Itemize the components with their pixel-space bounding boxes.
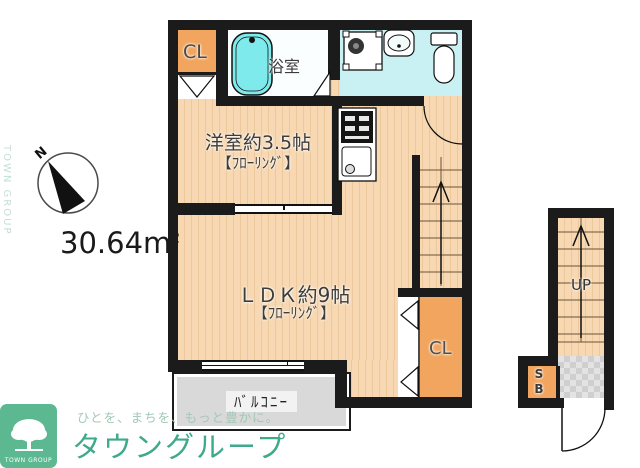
- closet-bottom-label: CL: [429, 338, 452, 359]
- wall-main-top: [168, 20, 472, 30]
- wall-main-left: [168, 20, 178, 372]
- town-group-logo: TOWN GROUP: [0, 404, 57, 468]
- area-value: 30.64m: [60, 226, 171, 260]
- sliding-door-tick: [283, 204, 285, 210]
- closet-top-door-area: [178, 75, 216, 99]
- wall-entry-bottom: [518, 398, 564, 408]
- shoe-box-label: SB: [533, 367, 545, 397]
- compass-icon: [38, 153, 98, 214]
- left-edge-watermark: TOWN GROUP: [1, 145, 12, 235]
- ldk-flooring-label: 【ﾌﾛｰﾘﾝｸﾞ】: [224, 302, 364, 323]
- logo-box-text: TOWN GROUP: [5, 457, 52, 464]
- tree-logo-icon: [7, 417, 51, 457]
- area-text: 30.64m2: [60, 226, 180, 260]
- closet-bottom-door-area: [398, 297, 420, 397]
- wall-shoebox-divider: [556, 366, 560, 398]
- bathroom-label: 浴室: [268, 53, 300, 77]
- wall-bath-wash-divider: [328, 20, 340, 80]
- wall-main-right: [462, 20, 472, 408]
- floorplan-image: TOWN GROUP ﾊﾞﾙｺﾆｰ: [0, 0, 640, 468]
- wall-main-bottom-right: [335, 397, 472, 408]
- wall-entry-right: [604, 208, 614, 410]
- closet-top-label: CL: [183, 41, 207, 63]
- brand-name: タウングループ: [72, 424, 287, 466]
- window-sash-line: [202, 365, 304, 366]
- compass-north-label: N: [32, 144, 50, 162]
- window-tick: [287, 361, 288, 366]
- wall-closet-top-line: [178, 72, 216, 75]
- wall-room-partition: [178, 203, 235, 215]
- wall-entry-left: [548, 208, 558, 358]
- washroom-floor: [340, 30, 462, 96]
- entrance-tile: [558, 356, 604, 398]
- wall-wet-bottom: [216, 96, 424, 106]
- stairs-up-label: UP: [564, 276, 598, 294]
- western-room-label: 洋室約3.5帖: [183, 128, 333, 155]
- wall-bath-left: [216, 20, 228, 106]
- western-room-flooring-label: 【ﾌﾛｰﾘﾝｸﾞ】: [183, 152, 333, 173]
- wall-stairs-left: [412, 155, 420, 291]
- wall-stairs-closet-divider: [398, 288, 462, 297]
- wall-kitchen-divider: [332, 106, 342, 215]
- area-superscript: 2: [171, 230, 180, 246]
- entrance-door-arc: [562, 408, 605, 451]
- entrance-door-opening: [564, 398, 604, 408]
